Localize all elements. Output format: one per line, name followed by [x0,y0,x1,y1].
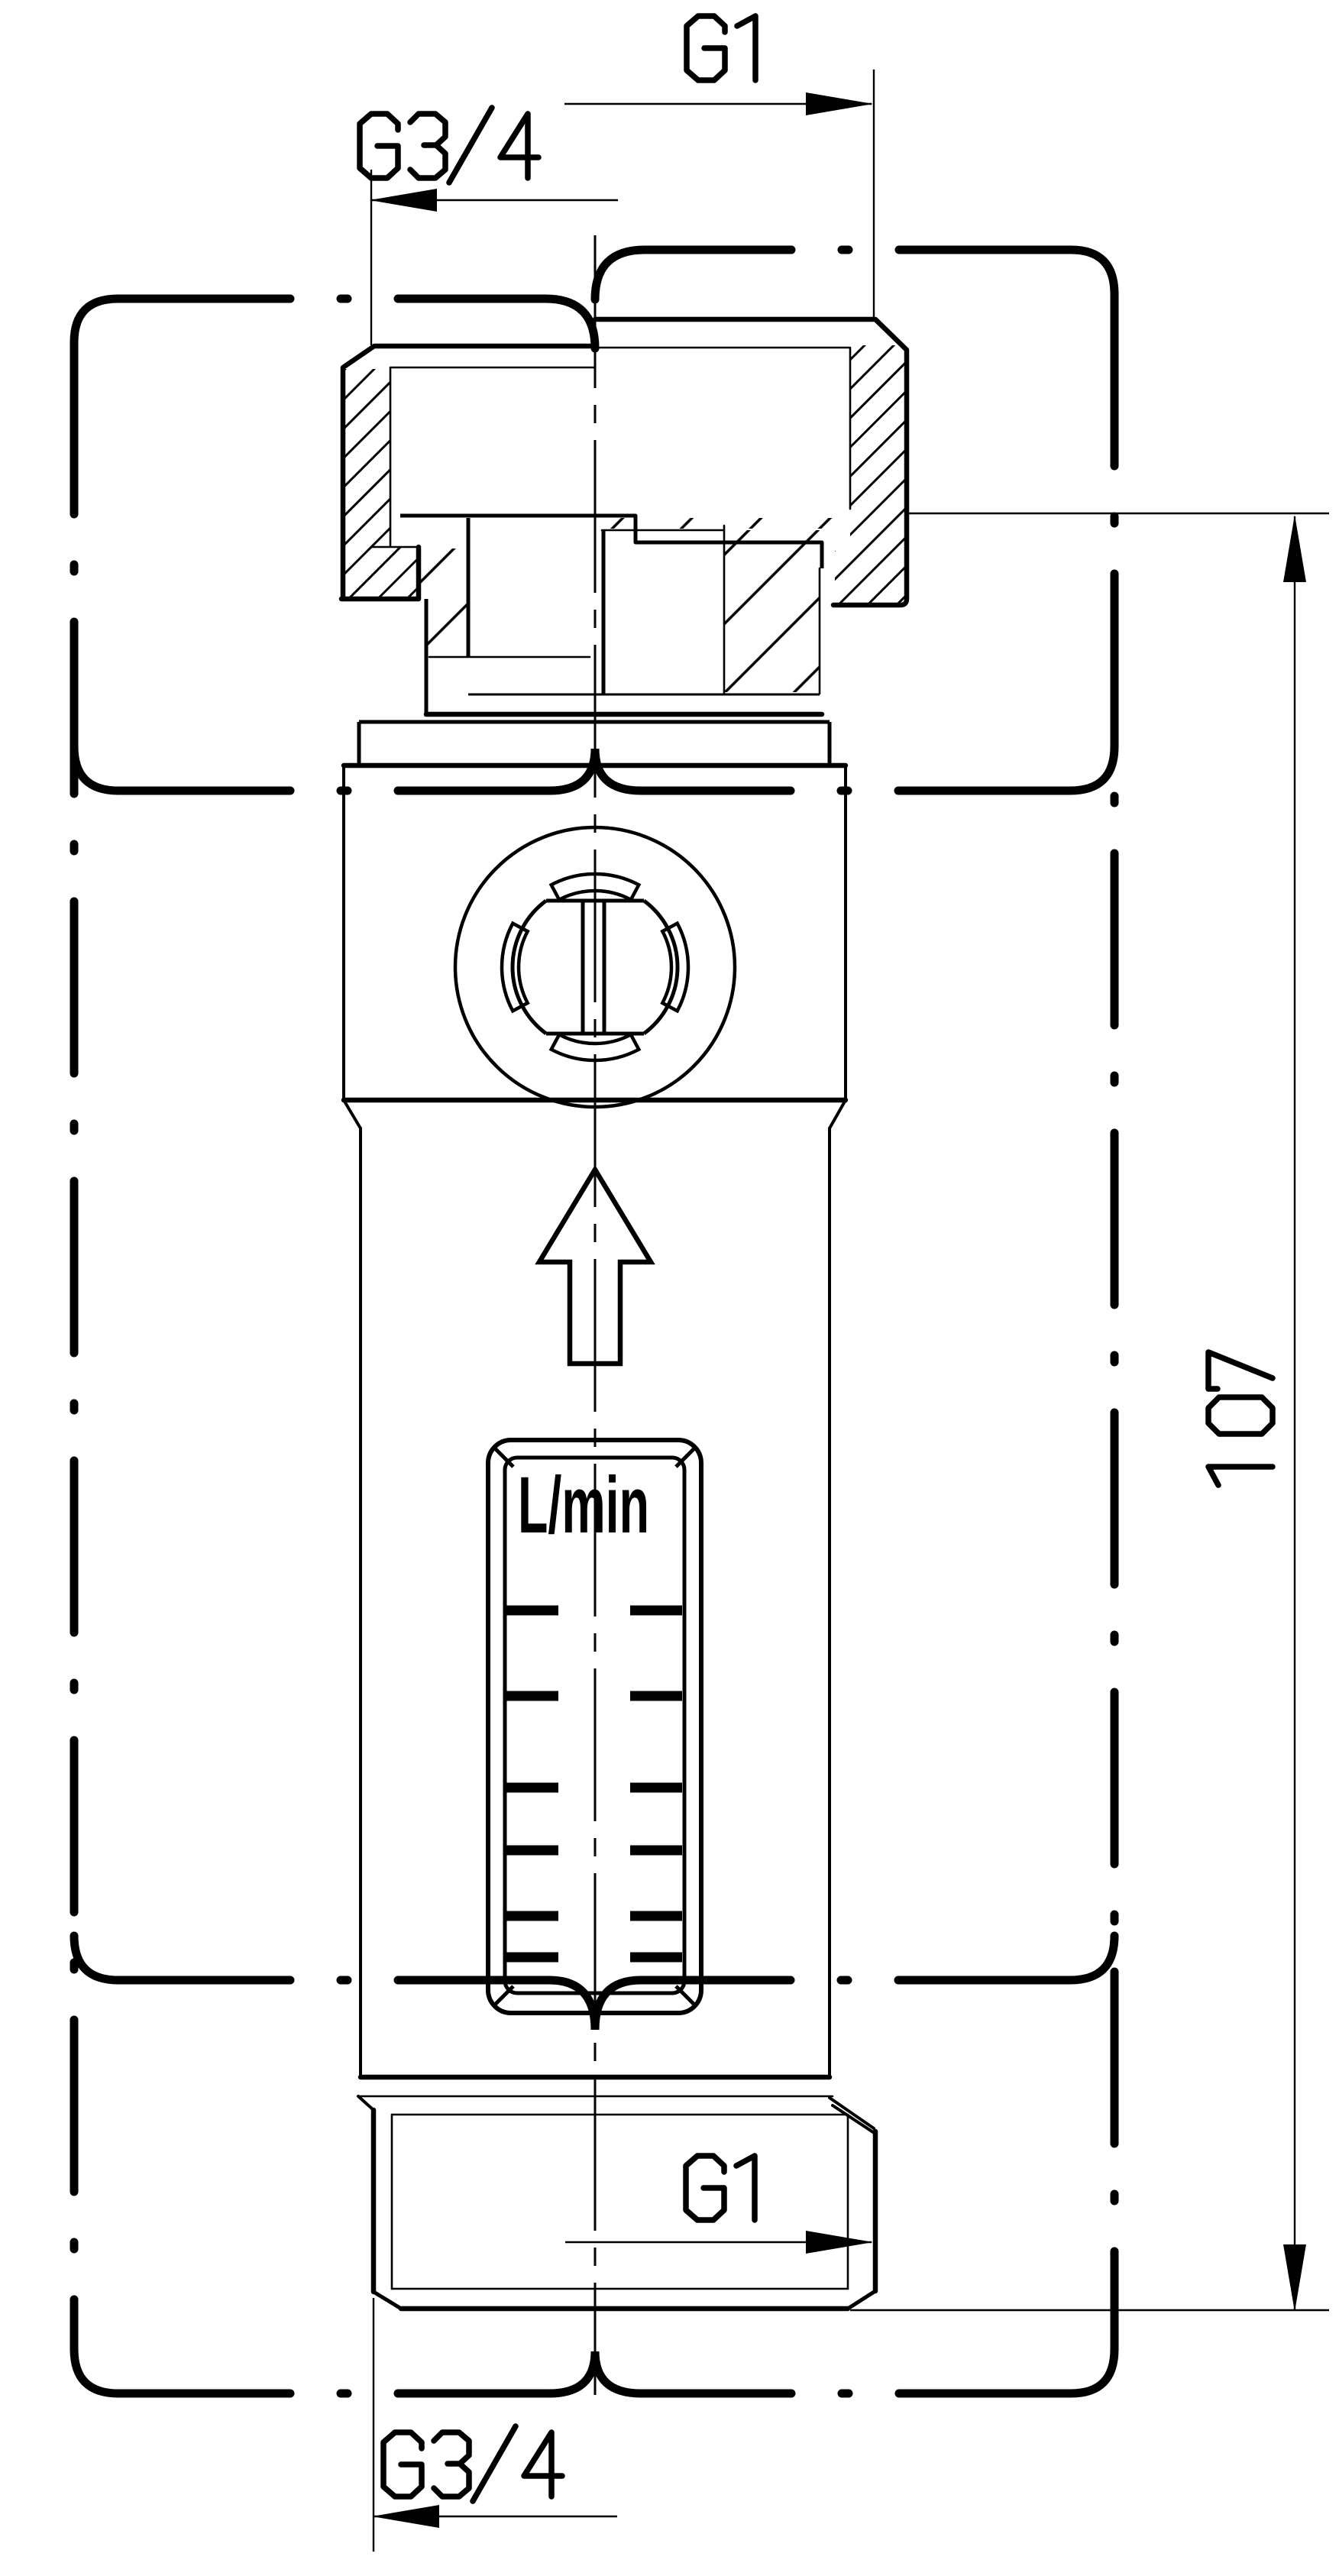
svg-text:L/min: L/min [518,1461,649,1550]
